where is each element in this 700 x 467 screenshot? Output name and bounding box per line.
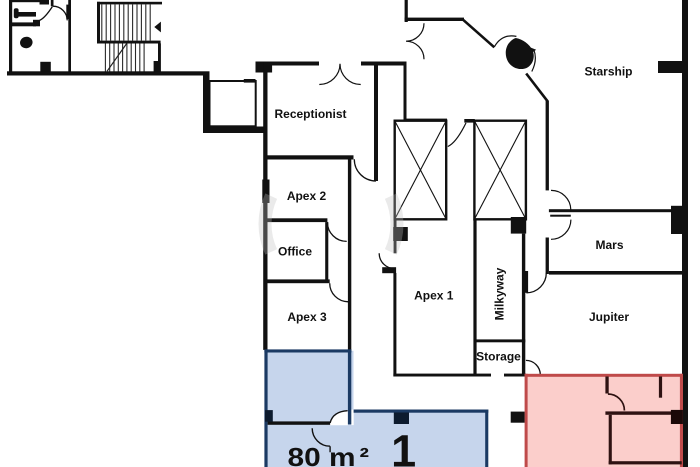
svg-text:80 m: 80 m bbox=[288, 442, 356, 467]
svg-text:Milkyway: Milkyway bbox=[493, 267, 507, 320]
svg-text:Office: Office bbox=[278, 245, 312, 259]
svg-text:Apex 2: Apex 2 bbox=[287, 189, 327, 203]
svg-text:Jupiter: Jupiter bbox=[589, 310, 629, 324]
svg-text:Receptionist: Receptionist bbox=[274, 107, 346, 121]
svg-text:Apex 3: Apex 3 bbox=[287, 310, 327, 324]
svg-text:Storage: Storage bbox=[476, 350, 521, 364]
svg-text:Starship: Starship bbox=[584, 65, 632, 79]
svg-text:1: 1 bbox=[391, 426, 416, 467]
svg-text:Apex 1: Apex 1 bbox=[414, 289, 454, 303]
svg-text:²: ² bbox=[360, 442, 370, 467]
svg-text:Mars: Mars bbox=[595, 238, 623, 252]
